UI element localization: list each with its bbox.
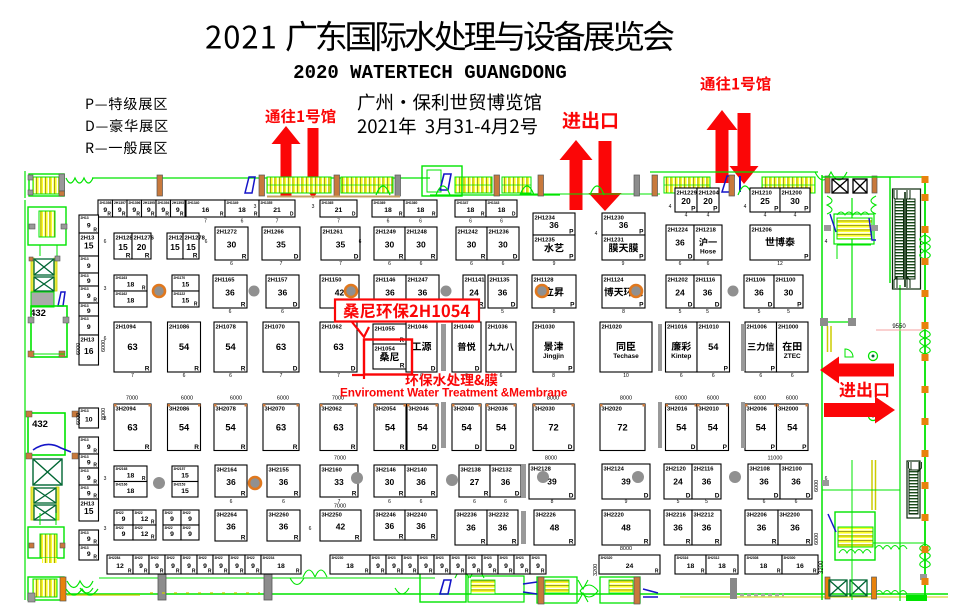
svg-text:2H13: 2H13: [81, 486, 89, 490]
svg-text:3H22: 3H22: [135, 511, 143, 515]
svg-text:2H1170: 2H1170: [174, 276, 186, 280]
svg-text:15: 15: [181, 488, 189, 495]
svg-text:3H22: 3H22: [167, 556, 175, 560]
svg-text:63: 63: [333, 422, 343, 432]
svg-text:3H2070: 3H2070: [265, 407, 285, 413]
svg-text:6: 6: [309, 526, 312, 532]
svg-text:3H23: 3H23: [532, 556, 540, 560]
svg-text:R: R: [772, 539, 777, 546]
svg-text:54: 54: [708, 342, 719, 352]
svg-text:9: 9: [625, 499, 628, 505]
svg-text:9: 9: [170, 516, 174, 523]
svg-text:6: 6: [241, 219, 244, 225]
svg-text:D: D: [432, 444, 437, 451]
svg-text:R: R: [220, 212, 224, 218]
svg-text:R: R: [241, 444, 246, 451]
svg-text:54: 54: [496, 422, 507, 432]
svg-text:6000: 6000: [707, 396, 719, 402]
svg-text:D: D: [691, 444, 696, 451]
svg-text:9550: 9550: [892, 324, 906, 330]
svg-text:P: P: [639, 302, 644, 309]
svg-text:R: R: [122, 212, 126, 218]
svg-text:2H1247: 2H1247: [408, 278, 428, 284]
svg-text:R: R: [686, 539, 691, 546]
svg-text:9: 9: [188, 516, 192, 523]
svg-text:36: 36: [759, 477, 769, 487]
svg-text:18: 18: [127, 282, 135, 289]
svg-text:3H23: 3H23: [388, 556, 396, 560]
svg-text:3H2312: 3H2312: [708, 556, 720, 560]
svg-text:D: D: [510, 444, 515, 451]
svg-text:D: D: [686, 493, 691, 500]
svg-text:3H2232: 3H2232: [489, 513, 509, 519]
svg-text:18: 18: [127, 472, 135, 479]
svg-text:P: P: [639, 229, 644, 236]
svg-text:R: R: [145, 444, 150, 451]
svg-text:9: 9: [408, 563, 412, 570]
svg-text:54: 54: [787, 422, 798, 432]
svg-text:42: 42: [336, 522, 346, 532]
svg-text:R: R: [399, 491, 404, 498]
svg-text:2H13: 2H13: [81, 455, 89, 459]
svg-text:D: D: [768, 302, 773, 309]
svg-text:12: 12: [141, 516, 149, 523]
svg-text:12: 12: [116, 563, 124, 570]
svg-text:6: 6: [500, 219, 503, 225]
svg-text:D: D: [644, 493, 649, 500]
svg-text:2H1224: 2H1224: [668, 228, 689, 234]
svg-text:9: 9: [87, 293, 91, 300]
svg-text:3H2316: 3H2316: [677, 556, 689, 560]
svg-text:D: D: [569, 493, 574, 500]
svg-text:6: 6: [281, 309, 284, 315]
svg-text:3H23: 3H23: [484, 556, 492, 560]
svg-text:R: R: [294, 535, 299, 542]
svg-text:D: D: [512, 212, 516, 218]
svg-text:7: 7: [280, 261, 283, 267]
svg-text:2H13: 2H13: [81, 409, 89, 413]
svg-text:3H22: 3H22: [165, 511, 173, 515]
svg-text:3H23: 3H23: [372, 556, 380, 560]
svg-text:3H2108: 3H2108: [750, 467, 771, 473]
svg-text:3H2016: 3H2016: [667, 407, 688, 413]
svg-text:72: 72: [617, 422, 627, 432]
svg-text:R: R: [431, 491, 436, 498]
svg-text:8: 8: [551, 499, 554, 505]
svg-text:2H13: 2H13: [81, 531, 89, 535]
svg-text:2H1202: 2H1202: [668, 278, 688, 284]
svg-text:P: P: [804, 206, 809, 213]
svg-text:6: 6: [679, 261, 682, 267]
svg-text:54: 54: [225, 342, 236, 352]
svg-text:6: 6: [763, 499, 766, 505]
svg-text:36: 36: [673, 523, 683, 533]
svg-text:3H22: 3H22: [183, 511, 191, 515]
svg-text:15: 15: [84, 506, 94, 516]
svg-text:D: D: [688, 302, 693, 309]
svg-text:R: R: [241, 535, 246, 542]
svg-text:36: 36: [416, 477, 426, 487]
svg-text:3H2046: 3H2046: [409, 407, 430, 413]
svg-text:2H1146: 2H1146: [376, 278, 397, 284]
svg-text:9: 9: [504, 563, 508, 570]
svg-text:2H1070: 2H1070: [265, 325, 285, 331]
svg-text:54: 54: [179, 422, 190, 432]
svg-text:3H2250: 3H2250: [322, 513, 342, 519]
svg-text:9: 9: [203, 563, 207, 570]
svg-text:36: 36: [278, 288, 288, 298]
svg-text:6: 6: [388, 261, 391, 267]
svg-text:D: D: [431, 366, 436, 373]
svg-text:3: 3: [104, 286, 107, 292]
svg-text:R: R: [224, 569, 228, 575]
svg-text:36: 36: [225, 288, 235, 298]
svg-text:R: R: [400, 444, 405, 451]
svg-text:6: 6: [500, 373, 503, 379]
svg-text:4: 4: [764, 213, 767, 219]
svg-text:2H1340: 2H1340: [188, 201, 200, 205]
svg-text:6: 6: [230, 261, 233, 267]
svg-text:9: 9: [87, 444, 91, 451]
svg-text:R: R: [144, 569, 148, 575]
svg-text:4: 4: [794, 213, 797, 219]
svg-text:R: R: [481, 212, 485, 218]
svg-text:3: 3: [104, 526, 107, 532]
svg-text:15: 15: [186, 242, 196, 252]
svg-text:6000: 6000: [754, 396, 766, 402]
svg-text:27: 27: [470, 477, 480, 487]
svg-text:3H2260: 3H2260: [269, 513, 289, 519]
svg-text:2H1016: 2H1016: [667, 325, 688, 331]
svg-text:36: 36: [549, 220, 559, 230]
svg-text:3H22: 3H22: [247, 556, 255, 560]
svg-text:36: 36: [466, 523, 476, 533]
svg-text:2H1094: 2H1094: [116, 325, 137, 331]
svg-text:R: R: [294, 491, 299, 498]
svg-text:6: 6: [229, 373, 232, 379]
svg-text:10: 10: [623, 373, 629, 379]
svg-text:9: 9: [171, 563, 175, 570]
svg-text:3H2246: 3H2246: [376, 513, 397, 519]
svg-text:R: R: [136, 212, 140, 218]
svg-text:25: 25: [760, 196, 770, 206]
svg-text:36: 36: [385, 288, 395, 298]
svg-text:4: 4: [707, 213, 710, 219]
svg-text:6: 6: [230, 499, 233, 505]
svg-text:3H2138: 3H2138: [461, 468, 482, 474]
svg-text:36: 36: [498, 288, 508, 298]
svg-text:3H2086: 3H2086: [169, 407, 190, 413]
svg-text:R: R: [461, 569, 465, 575]
svg-text:21: 21: [273, 207, 281, 214]
svg-text:2H1106: 2H1106: [746, 278, 767, 284]
svg-text:35: 35: [336, 240, 346, 250]
svg-text:15: 15: [181, 472, 189, 479]
svg-text:R: R: [194, 302, 198, 308]
svg-text:3H22: 3H22: [151, 556, 159, 560]
svg-text:R: R: [165, 212, 169, 218]
svg-text:8: 8: [622, 309, 625, 315]
svg-text:2H1078: 2H1078: [216, 325, 237, 331]
svg-text:2H1162: 2H1162: [116, 292, 128, 296]
svg-text:9: 9: [440, 563, 444, 570]
svg-text:2H1124: 2H1124: [604, 278, 625, 284]
svg-text:432: 432: [32, 419, 48, 430]
svg-text:3H2264: 3H2264: [217, 513, 238, 519]
svg-text:6: 6: [359, 239, 362, 245]
svg-text:P: P: [639, 254, 644, 261]
svg-text:3H2164: 3H2164: [217, 468, 238, 474]
svg-text:20: 20: [137, 242, 147, 252]
svg-text:R: R: [128, 569, 132, 575]
svg-text:6000: 6000: [76, 413, 82, 425]
svg-text:2H1355: 2H1355: [261, 201, 273, 205]
svg-text:2H1349: 2H1349: [227, 201, 239, 205]
svg-text:3H22: 3H22: [199, 556, 207, 560]
svg-text:6: 6: [104, 239, 107, 245]
svg-text:2H1272: 2H1272: [217, 230, 237, 236]
svg-text:3H2166: 3H2166: [116, 483, 128, 487]
svg-text:36: 36: [279, 477, 289, 487]
svg-text:R: R: [192, 569, 196, 575]
svg-text:D: D: [774, 493, 779, 500]
svg-text:3H22: 3H22: [135, 526, 143, 530]
svg-text:2H1360: 2H1360: [406, 201, 418, 205]
svg-text:36: 36: [791, 477, 801, 487]
svg-text:16: 16: [84, 346, 94, 356]
svg-text:ZTEC: ZTEC: [784, 353, 801, 360]
svg-text:7: 7: [337, 219, 340, 225]
svg-text:2H1276: 2H1276: [134, 236, 155, 242]
svg-text:D: D: [475, 366, 480, 373]
svg-text:2H1036: 2H1036: [488, 325, 509, 331]
svg-text:2H1248: 2H1248: [407, 230, 428, 236]
svg-text:9: 9: [520, 563, 524, 570]
svg-text:3H2212: 3H2212: [694, 513, 714, 519]
svg-text:18: 18: [718, 563, 726, 570]
svg-text:2H1393: 2H1393: [172, 201, 184, 205]
svg-text:54: 54: [708, 422, 719, 432]
svg-text:20: 20: [681, 196, 691, 206]
svg-text:R: R: [484, 491, 489, 498]
svg-text:P: P: [713, 206, 718, 213]
svg-text:9: 9: [235, 563, 239, 570]
svg-text:2H1395: 2H1395: [143, 201, 155, 205]
svg-text:36: 36: [754, 288, 764, 298]
svg-text:36: 36: [226, 522, 236, 532]
svg-text:2H1397: 2H1397: [114, 201, 126, 205]
svg-text:36: 36: [385, 521, 395, 531]
svg-text:3H2010: 3H2010: [699, 407, 719, 413]
svg-text:24: 24: [626, 563, 634, 570]
svg-text:R: R: [397, 569, 401, 575]
svg-text:R: R: [806, 539, 811, 546]
svg-text:R: R: [240, 569, 244, 575]
svg-text:R: R: [431, 254, 436, 261]
svg-text:2H1150: 2H1150: [322, 278, 342, 284]
svg-text:3H2000: 3H2000: [778, 407, 798, 413]
svg-text:R: R: [365, 569, 369, 575]
svg-text:6: 6: [712, 373, 715, 379]
svg-text:9: 9: [622, 261, 625, 267]
svg-text:R: R: [208, 569, 212, 575]
svg-text:R: R: [296, 569, 300, 575]
svg-text:3H2020: 3H2020: [602, 407, 622, 413]
svg-text:3H2226: 3H2226: [536, 513, 557, 519]
svg-text:P: P: [802, 444, 807, 451]
svg-text:7: 7: [337, 373, 340, 379]
svg-text:6000: 6000: [181, 396, 193, 402]
svg-text:9: 9: [87, 223, 91, 230]
svg-text:18: 18: [127, 488, 135, 495]
svg-text:18: 18: [238, 207, 246, 214]
svg-text:R: R: [512, 539, 517, 546]
svg-text:2H1000: 2H1000: [778, 325, 798, 331]
svg-text:R: R: [429, 569, 433, 575]
svg-text:R: R: [355, 535, 360, 542]
svg-text:6: 6: [229, 309, 232, 315]
svg-text:9: 9: [87, 491, 91, 498]
svg-text:2H1135: 2H1135: [490, 278, 511, 284]
svg-text:6000: 6000: [814, 533, 820, 545]
svg-text:3H2132: 3H2132: [492, 468, 512, 474]
svg-text:33: 33: [334, 477, 344, 487]
svg-text:9: 9: [188, 531, 192, 538]
svg-text:R: R: [477, 569, 481, 575]
svg-text:3H2140: 3H2140: [407, 468, 427, 474]
svg-text:8000: 8000: [545, 456, 557, 462]
svg-text:9: 9: [87, 475, 91, 482]
svg-text:R: R: [525, 569, 529, 575]
svg-text:9: 9: [219, 563, 223, 570]
svg-text:54: 54: [756, 422, 767, 432]
svg-text:2H1010: 2H1010: [699, 325, 719, 331]
svg-text:P: P: [723, 444, 728, 451]
svg-text:R: R: [541, 569, 545, 575]
svg-text:36: 36: [279, 522, 289, 532]
svg-text:16: 16: [202, 207, 210, 214]
svg-text:R: R: [160, 569, 164, 575]
svg-text:15: 15: [182, 298, 190, 305]
svg-text:54: 54: [385, 422, 396, 432]
svg-text:6: 6: [469, 219, 472, 225]
svg-text:63: 63: [276, 422, 286, 432]
svg-text:39: 39: [621, 477, 631, 487]
svg-text:R: R: [241, 302, 246, 309]
svg-text:3H2300: 3H2300: [784, 556, 796, 560]
svg-text:54: 54: [461, 422, 472, 432]
svg-text:9: 9: [553, 261, 556, 267]
svg-text:R: R: [107, 212, 111, 218]
svg-text:18: 18: [687, 563, 695, 570]
svg-text:R: R: [399, 254, 404, 261]
svg-text:2H1163: 2H1163: [116, 276, 128, 280]
svg-text:2H1261: 2H1261: [323, 230, 344, 236]
svg-text:R: R: [194, 444, 199, 451]
svg-text:3H2146: 3H2146: [376, 468, 397, 474]
svg-text:16: 16: [796, 563, 804, 570]
svg-text:R: R: [481, 539, 486, 546]
svg-text:R: R: [644, 539, 649, 546]
svg-text:12: 12: [777, 261, 783, 267]
svg-text:6000: 6000: [230, 396, 242, 402]
svg-text:2H1365: 2H1365: [322, 201, 334, 205]
svg-text:D: D: [352, 212, 356, 218]
svg-text:R: R: [145, 253, 150, 260]
svg-text:3H2240: 3H2240: [407, 513, 427, 519]
svg-text:R: R: [126, 253, 131, 260]
svg-text:P: P: [568, 366, 573, 373]
svg-text:6000: 6000: [76, 343, 82, 355]
svg-text:54: 54: [225, 422, 236, 432]
svg-text:2H1218: 2H1218: [696, 228, 717, 234]
svg-text:2H1394: 2H1394: [158, 201, 170, 205]
svg-text:9: 9: [187, 563, 191, 570]
svg-text:6: 6: [419, 219, 422, 225]
svg-text:R: R: [293, 444, 298, 451]
svg-text:6: 6: [470, 261, 473, 267]
svg-text:7000: 7000: [334, 456, 346, 462]
svg-text:Kintep: Kintep: [671, 353, 691, 360]
svg-text:D: D: [688, 254, 693, 261]
svg-text:6: 6: [795, 499, 798, 505]
svg-text:3H2124: 3H2124: [604, 467, 625, 473]
svg-text:36: 36: [498, 523, 508, 533]
svg-text:21: 21: [335, 207, 343, 214]
svg-text:2H1100: 2H1100: [776, 278, 796, 284]
svg-text:D: D: [568, 444, 573, 451]
svg-text:4: 4: [669, 204, 672, 210]
svg-text:R: R: [176, 569, 180, 575]
svg-text:R: R: [242, 254, 247, 261]
svg-text:48: 48: [621, 523, 631, 533]
svg-text:P: P: [771, 366, 776, 373]
svg-text:R: R: [399, 534, 404, 541]
svg-text:R: R: [194, 366, 199, 373]
svg-text:2H1266: 2H1266: [264, 230, 285, 236]
svg-text:3H23: 3H23: [468, 556, 476, 560]
svg-text:3H23: 3H23: [436, 556, 444, 560]
svg-text:3H2206: 3H2206: [747, 513, 768, 519]
svg-text:R: R: [93, 555, 97, 561]
svg-text:3H2030: 3H2030: [535, 407, 555, 413]
svg-text:R: R: [493, 569, 497, 575]
svg-text:18: 18: [384, 207, 392, 214]
svg-text:7: 7: [131, 373, 134, 379]
svg-text:30: 30: [385, 240, 395, 250]
svg-text:9: 9: [87, 278, 91, 285]
svg-text:P: P: [804, 254, 809, 261]
svg-text:6000: 6000: [814, 480, 820, 492]
svg-text:15: 15: [170, 242, 180, 252]
svg-text:3H22: 3H22: [183, 556, 191, 560]
svg-text:30: 30: [227, 240, 237, 250]
svg-text:R: R: [777, 569, 781, 575]
svg-text:9: 9: [536, 563, 540, 570]
svg-text:2H1206: 2H1206: [752, 228, 773, 234]
svg-text:9: 9: [392, 563, 396, 570]
svg-text:36: 36: [757, 523, 767, 533]
svg-text:6: 6: [791, 373, 794, 379]
svg-text:3H2040: 3H2040: [454, 407, 474, 413]
svg-text:2H13: 2H13: [81, 338, 96, 344]
svg-text:6: 6: [282, 499, 285, 505]
svg-text:10: 10: [85, 417, 93, 424]
svg-text:30: 30: [790, 196, 800, 206]
svg-text:9: 9: [456, 563, 460, 570]
svg-text:9: 9: [170, 531, 174, 538]
svg-text:36: 36: [790, 523, 800, 533]
